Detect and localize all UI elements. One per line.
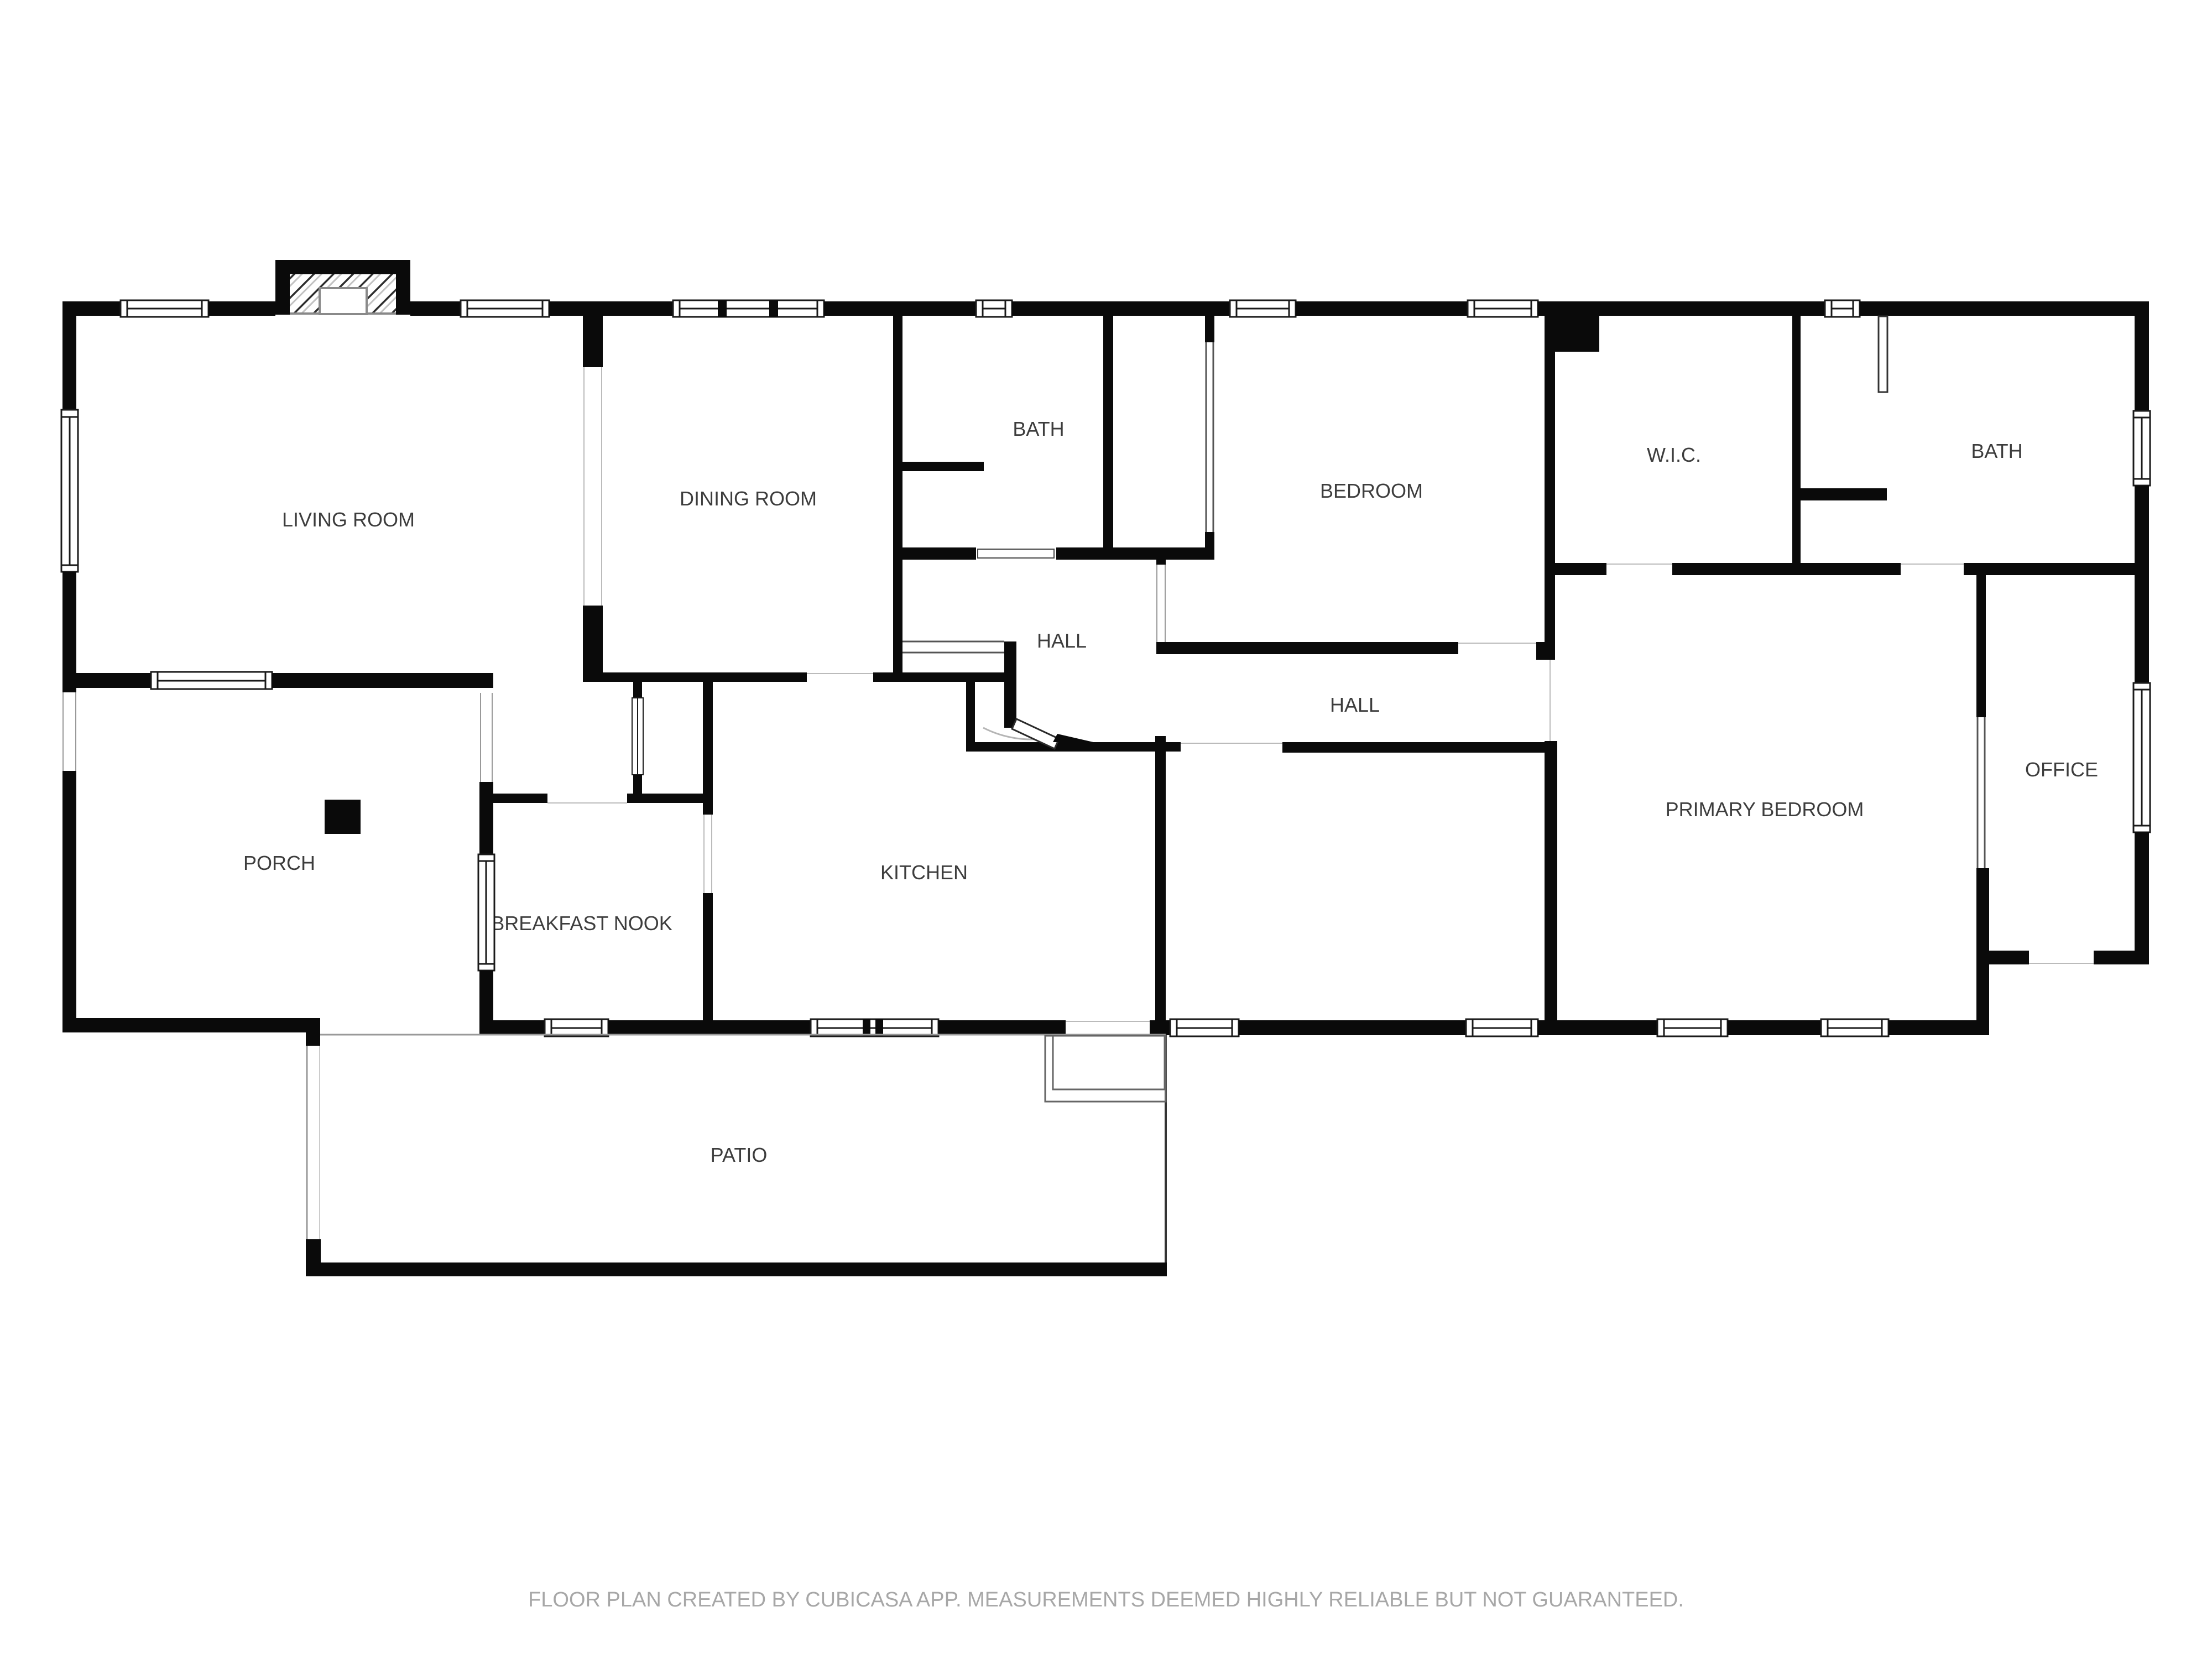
svg-text:DINING ROOM: DINING ROOM [680, 487, 817, 510]
svg-text:W.I.C.: W.I.C. [1647, 444, 1701, 466]
svg-text:BREAKFAST NOOK: BREAKFAST NOOK [491, 912, 672, 935]
svg-text:KITCHEN: KITCHEN [880, 861, 968, 884]
svg-text:PATIO: PATIO [711, 1144, 768, 1166]
svg-text:PORCH: PORCH [243, 852, 315, 874]
svg-text:HALL: HALL [1330, 693, 1380, 716]
svg-text:BATH: BATH [1971, 440, 2022, 462]
svg-text:BEDROOM: BEDROOM [1320, 479, 1423, 502]
svg-text:BATH: BATH [1013, 418, 1064, 440]
svg-text:OFFICE: OFFICE [2025, 758, 2098, 781]
svg-text:FLOOR PLAN CREATED BY CUBICASA: FLOOR PLAN CREATED BY CUBICASA APP. MEAS… [528, 1588, 1684, 1611]
svg-text:PRIMARY BEDROOM: PRIMARY BEDROOM [1666, 798, 1864, 821]
svg-text:HALL: HALL [1037, 629, 1087, 652]
svg-text:LIVING ROOM: LIVING ROOM [282, 508, 415, 531]
